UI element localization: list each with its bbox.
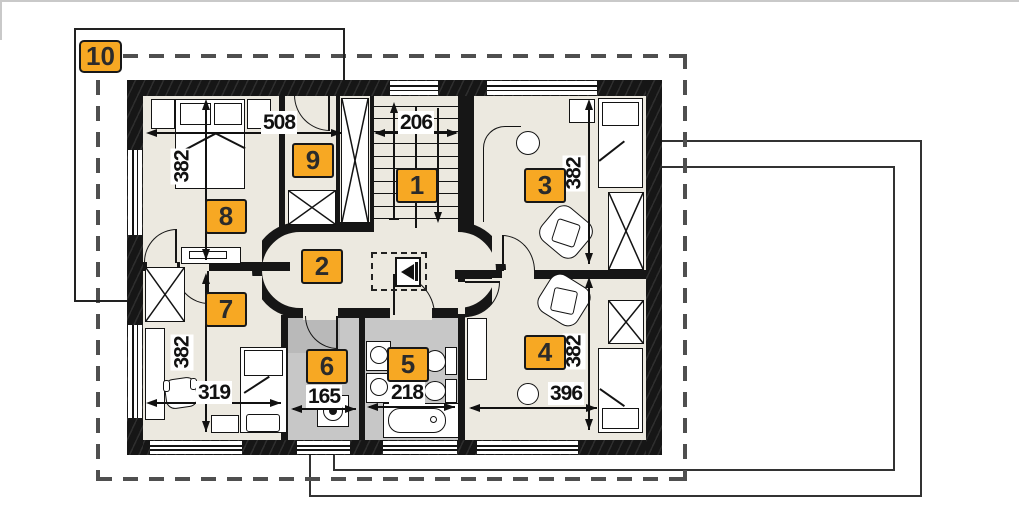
dim-arrow bbox=[469, 404, 480, 412]
stool-icon bbox=[516, 131, 540, 155]
desk-icon bbox=[467, 318, 487, 380]
edge-line-left bbox=[0, 0, 2, 40]
bidet-icon bbox=[445, 379, 457, 403]
sink-basin bbox=[370, 378, 388, 396]
door-leaf bbox=[465, 281, 500, 283]
door-leaf bbox=[502, 235, 504, 271]
toilet-icon bbox=[445, 347, 457, 375]
roof-outline-right bbox=[683, 54, 687, 481]
dim-arrow bbox=[291, 405, 302, 413]
terrace-outline-outer bbox=[309, 455, 311, 497]
dim-line bbox=[588, 102, 590, 264]
dim-arrow bbox=[202, 273, 210, 284]
room-label-7: 7 bbox=[205, 292, 247, 327]
wall bbox=[370, 96, 374, 228]
pillow bbox=[602, 102, 639, 126]
dim-arrow bbox=[146, 399, 157, 407]
dim-arrow bbox=[447, 129, 458, 137]
dim-arrow bbox=[270, 399, 281, 407]
room-label-3: 3 bbox=[524, 168, 566, 203]
terrace-outline-inner bbox=[662, 166, 895, 168]
dim-line bbox=[150, 132, 342, 134]
door-leaf bbox=[175, 229, 177, 263]
room-label-5: 5 bbox=[387, 347, 429, 382]
window bbox=[487, 81, 597, 95]
dim-arrow bbox=[202, 421, 210, 432]
dim-arrow bbox=[345, 405, 356, 413]
dim-319: 319 bbox=[196, 381, 232, 404]
room-label-1: 1 bbox=[396, 168, 438, 203]
wardrobe-icon bbox=[145, 267, 185, 322]
dim-382: 382 bbox=[171, 148, 194, 184]
dim-arrow bbox=[444, 403, 455, 411]
room-label-4: 4 bbox=[524, 335, 566, 370]
dim-arrow bbox=[146, 129, 157, 137]
door-leaf bbox=[336, 316, 338, 349]
dim-line bbox=[471, 407, 597, 409]
wardrobe-icon bbox=[608, 300, 644, 344]
leader-line bbox=[74, 28, 76, 302]
wardrobe-icon bbox=[341, 98, 369, 223]
room-label-6: 6 bbox=[306, 349, 348, 384]
window bbox=[297, 441, 350, 454]
dim-arrow bbox=[367, 403, 378, 411]
attic-hatch-arrow bbox=[401, 264, 414, 280]
floor-plan: 508 206 382 382 382 382 319 165 218 396 … bbox=[0, 0, 1019, 520]
wall bbox=[359, 315, 365, 440]
dim-arrow bbox=[202, 249, 210, 260]
window bbox=[128, 325, 142, 418]
dim-218: 218 bbox=[389, 381, 425, 404]
dim-arrow bbox=[586, 404, 597, 412]
room-label-8: 8 bbox=[205, 199, 247, 234]
stairs-start-tick bbox=[389, 218, 399, 220]
window bbox=[128, 150, 142, 235]
room-label-2: 2 bbox=[301, 249, 343, 284]
door-opening bbox=[458, 282, 465, 314]
sink-basin bbox=[370, 346, 388, 364]
terrace-outline-outer bbox=[309, 495, 922, 497]
roof-outline-top bbox=[97, 54, 686, 58]
dim-382: 382 bbox=[171, 334, 194, 370]
wall bbox=[458, 96, 474, 232]
wardrobe-icon bbox=[288, 190, 336, 225]
stairs-down-arrow bbox=[434, 212, 442, 223]
pillow bbox=[214, 103, 242, 125]
dim-line bbox=[205, 102, 207, 260]
dim-arrow bbox=[331, 129, 342, 137]
door-leaf bbox=[328, 95, 330, 131]
window bbox=[383, 441, 457, 454]
pillow bbox=[602, 408, 639, 429]
room-label-9: 9 bbox=[292, 143, 334, 178]
leader-line bbox=[343, 28, 345, 81]
dim-arrow bbox=[202, 99, 210, 110]
window bbox=[150, 441, 242, 454]
wall bbox=[336, 96, 340, 228]
rug bbox=[246, 414, 280, 432]
dim-arrow bbox=[374, 129, 385, 137]
bidet-bowl bbox=[424, 381, 446, 401]
wardrobe-icon bbox=[608, 192, 644, 270]
roof-outline-bottom bbox=[97, 477, 686, 481]
terrace-outline-inner bbox=[893, 166, 895, 471]
terrace-outline-outer bbox=[662, 140, 922, 142]
door-opening bbox=[502, 270, 534, 279]
bathtub-inner bbox=[388, 408, 446, 433]
dim-206: 206 bbox=[398, 111, 434, 134]
dim-165: 165 bbox=[306, 385, 342, 408]
room-label-10: 10 bbox=[79, 40, 122, 73]
edge-line-top bbox=[0, 0, 1019, 2]
dim-arrow bbox=[585, 253, 593, 264]
dim-arrow bbox=[585, 277, 593, 288]
attic-hatch-bar bbox=[415, 262, 418, 281]
terrace-outline-outer bbox=[920, 140, 922, 497]
nightstand bbox=[151, 99, 175, 129]
opening bbox=[246, 236, 262, 262]
stairs-up-arrow bbox=[390, 102, 398, 113]
bathtub-drain bbox=[430, 416, 437, 423]
dim-arrow bbox=[585, 419, 593, 430]
chair-arm bbox=[163, 380, 170, 392]
dim-arrow bbox=[585, 99, 593, 110]
stool-icon bbox=[517, 383, 539, 405]
stairs-up-line bbox=[393, 112, 395, 220]
dim-396: 396 bbox=[548, 382, 584, 405]
opening bbox=[246, 276, 262, 302]
armchair-cushion bbox=[550, 287, 578, 315]
side-table bbox=[211, 415, 239, 433]
dim-line bbox=[369, 406, 455, 408]
terrace-outline-inner bbox=[333, 469, 895, 471]
roof-outline-left bbox=[96, 54, 100, 481]
pillow bbox=[244, 350, 283, 376]
window bbox=[477, 441, 578, 454]
window bbox=[390, 81, 438, 95]
leader-line bbox=[74, 300, 129, 302]
wall bbox=[646, 80, 662, 455]
leader-line bbox=[75, 28, 345, 30]
dim-508: 508 bbox=[261, 111, 297, 134]
